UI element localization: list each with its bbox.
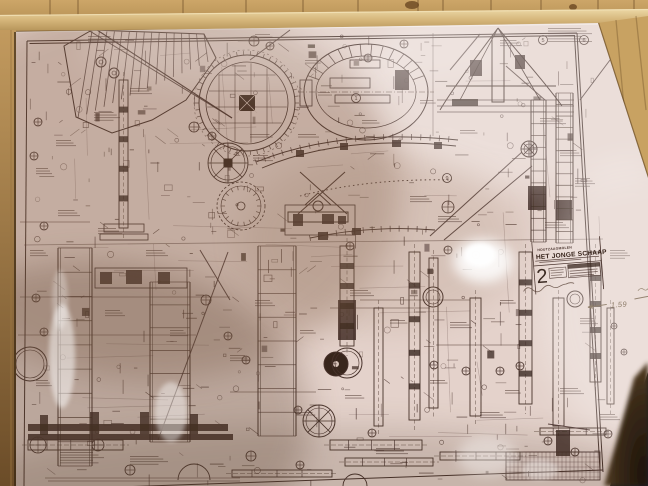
scatter-mark [488, 351, 494, 358]
tiny-text-row [345, 395, 362, 396]
post-band [519, 279, 532, 285]
tiny-text-row [480, 417, 506, 418]
tiny-text-row [480, 412, 500, 413]
post-band [409, 383, 420, 389]
tiny-text-row [430, 383, 448, 384]
flash-glare-spot [522, 460, 558, 480]
post-band [519, 371, 532, 377]
post-band [409, 350, 420, 356]
wall-planks-left [0, 30, 16, 486]
tiny-text-row [505, 393, 521, 394]
tiny-text-row [450, 322, 467, 323]
scatter-mark [352, 366, 358, 369]
photo-of-windmill-blueprint: 1569 HOUTZAAGMOLEN HET JONGE SCHAAP 2 1.… [0, 0, 648, 486]
tiny-text-row [430, 380, 445, 381]
post-band [519, 310, 532, 316]
flash-glare-spot [52, 270, 68, 330]
tiny-text-row [500, 303, 516, 304]
tiny-text-row [505, 390, 519, 391]
wood-knot [405, 1, 419, 9]
tiny-text-row [345, 398, 364, 399]
flash-glare-spot [464, 243, 496, 267]
post-band [519, 340, 532, 346]
tiny-text-row [450, 327, 472, 328]
tiny-text-row [450, 325, 469, 326]
flash-glare-spot [457, 436, 517, 476]
scatter-mark [516, 309, 518, 315]
flash-glare-spot [155, 382, 187, 442]
tiny-text-row [480, 415, 503, 416]
pencil-measurement: 1.59 [611, 300, 628, 310]
blueprint-photo-scene: 1569 HOUTZAAGMOLEN HET JONGE SCHAAP 2 1.… [0, 0, 648, 486]
tiny-text-row [500, 300, 514, 301]
sheet-number: 2 [536, 265, 549, 288]
wood-knot [569, 4, 577, 10]
